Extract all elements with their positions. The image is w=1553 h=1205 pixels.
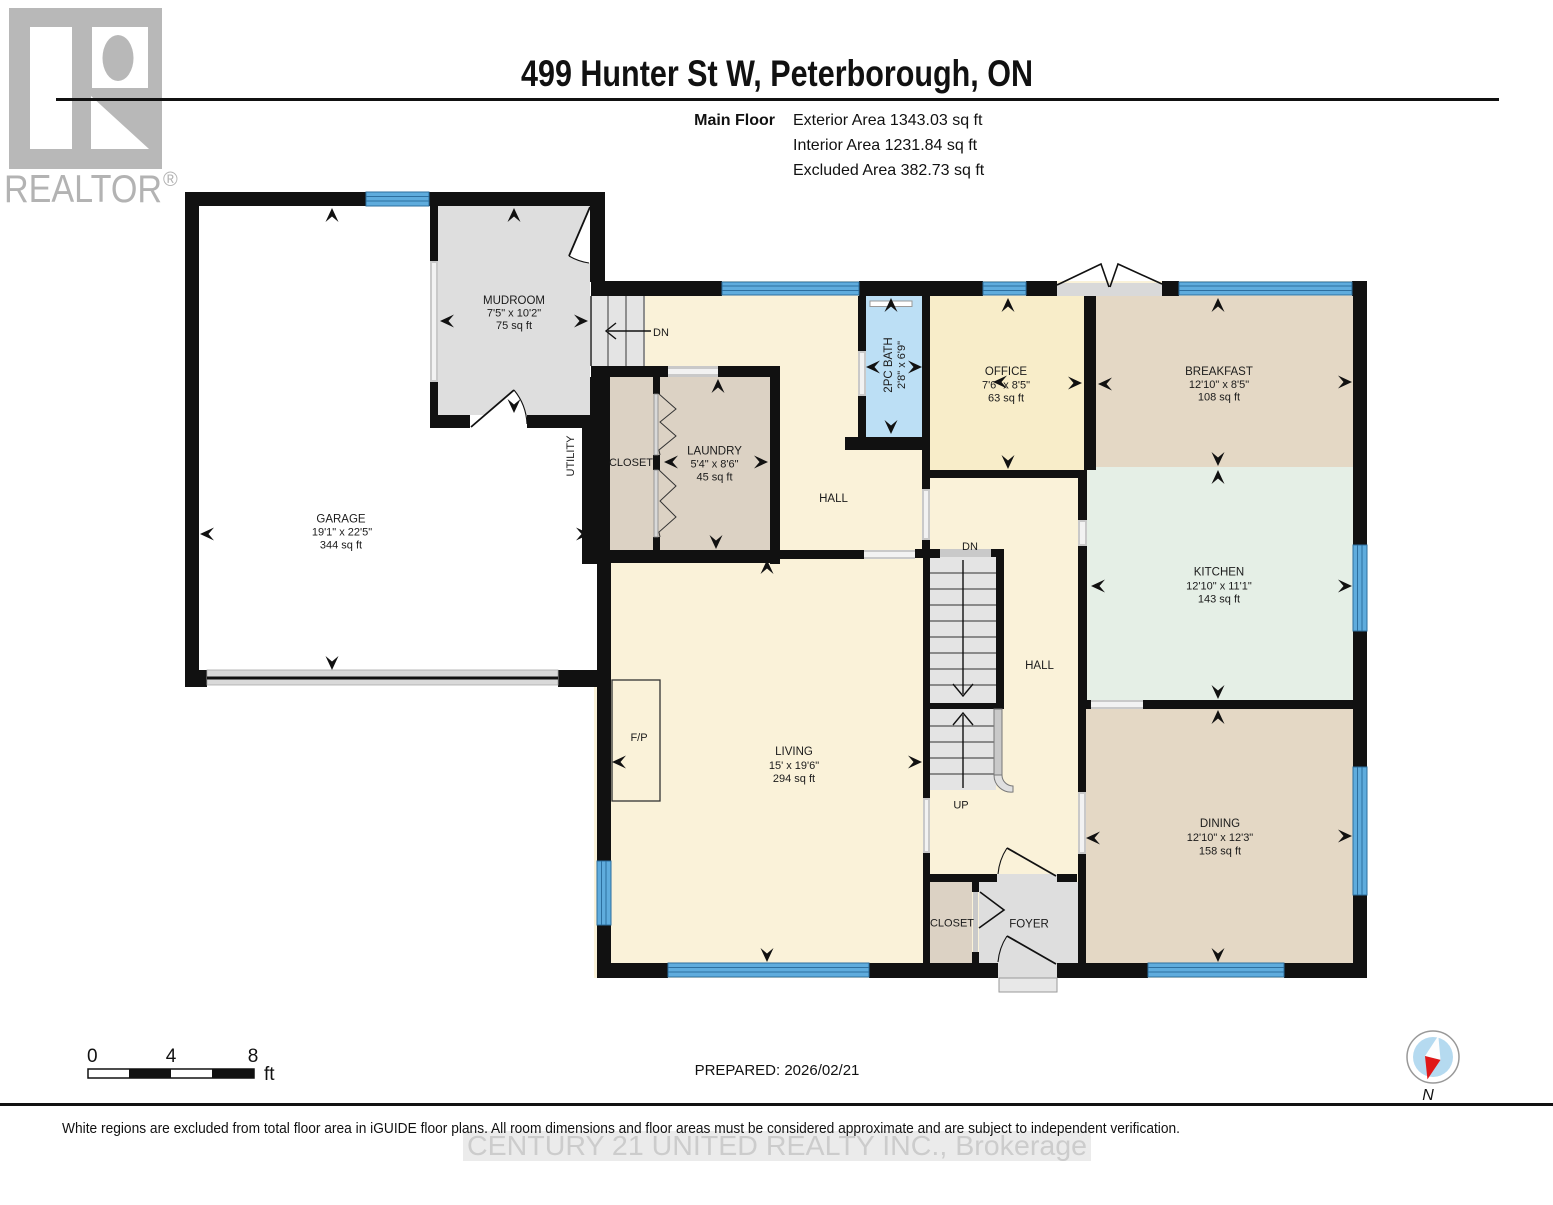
svg-text:0: 0: [87, 1046, 98, 1067]
svg-text:Exterior Area 1343.03 sq ft: Exterior Area 1343.03 sq ft: [793, 112, 983, 129]
svg-text:108 sq ft: 108 sq ft: [1198, 392, 1240, 404]
svg-text:GARAGE: GARAGE: [316, 514, 366, 526]
svg-text:143 sq ft: 143 sq ft: [1198, 594, 1240, 606]
svg-text:F/P: F/P: [630, 732, 647, 744]
svg-text:UP: UP: [953, 800, 968, 812]
svg-text:158 sq ft: 158 sq ft: [1199, 846, 1241, 858]
svg-text:®: ®: [163, 169, 178, 191]
svg-text:DN: DN: [653, 327, 669, 339]
svg-text:294 sq ft: 294 sq ft: [773, 773, 815, 785]
svg-text:Excluded Area 382.73 sq ft: Excluded Area 382.73 sq ft: [793, 162, 985, 179]
svg-text:12'10" x 8'5": 12'10" x 8'5": [1189, 379, 1249, 391]
svg-text:12'10" x 12'3": 12'10" x 12'3": [1187, 832, 1254, 844]
svg-text:Main Floor: Main Floor: [694, 112, 775, 129]
svg-text:HALL: HALL: [819, 493, 848, 505]
svg-text:7'5" x 10'2": 7'5" x 10'2": [487, 308, 541, 320]
svg-text:499 Hunter St W, Peterborough,: 499 Hunter St W, Peterborough, ON: [521, 53, 1033, 94]
svg-text:KITCHEN: KITCHEN: [1194, 567, 1244, 579]
svg-text:OFFICE: OFFICE: [985, 366, 1027, 378]
svg-text:DINING: DINING: [1200, 818, 1240, 830]
svg-text:N: N: [1422, 1087, 1434, 1104]
svg-text:CLOSET: CLOSET: [930, 918, 974, 930]
svg-text:DN: DN: [962, 541, 978, 553]
svg-text:CLOSET: CLOSET: [609, 457, 653, 469]
svg-text:344 sq ft: 344 sq ft: [320, 540, 362, 552]
svg-text:45 sq ft: 45 sq ft: [696, 472, 732, 484]
svg-text:FOYER: FOYER: [1009, 919, 1049, 931]
svg-text:7'6" x 8'5": 7'6" x 8'5": [982, 380, 1030, 392]
svg-text:75 sq ft: 75 sq ft: [496, 320, 532, 332]
svg-text:19'1" x 22'5": 19'1" x 22'5": [312, 527, 372, 539]
svg-text:ft: ft: [264, 1064, 275, 1085]
svg-text:UTILITY: UTILITY: [565, 435, 577, 477]
svg-text:Interior Area 1231.84 sq ft: Interior Area 1231.84 sq ft: [793, 137, 978, 154]
svg-text:PREPARED: 2026/02/21: PREPARED: 2026/02/21: [695, 1062, 860, 1079]
svg-text:5'4" x 8'6": 5'4" x 8'6": [690, 459, 738, 471]
svg-text:BREAKFAST: BREAKFAST: [1185, 366, 1253, 378]
svg-text:LIVING: LIVING: [775, 746, 813, 758]
svg-text:15' x 19'6": 15' x 19'6": [769, 760, 819, 772]
svg-text:White regions are excluded fro: White regions are excluded from total fl…: [62, 1121, 1180, 1137]
svg-text:63 sq ft: 63 sq ft: [988, 393, 1024, 405]
svg-text:12'10" x 11'1": 12'10" x 11'1": [1186, 581, 1252, 593]
svg-text:4: 4: [166, 1046, 177, 1067]
svg-text:LAUNDRY: LAUNDRY: [687, 446, 742, 458]
svg-text:2'8" x 6'9": 2'8" x 6'9": [896, 341, 908, 389]
svg-text:2PC BATH: 2PC BATH: [883, 337, 895, 392]
svg-text:MUDROOM: MUDROOM: [483, 295, 545, 307]
svg-text:8: 8: [248, 1046, 259, 1067]
svg-text:HALL: HALL: [1025, 660, 1054, 672]
svg-text:REALTOR: REALTOR: [4, 168, 162, 211]
